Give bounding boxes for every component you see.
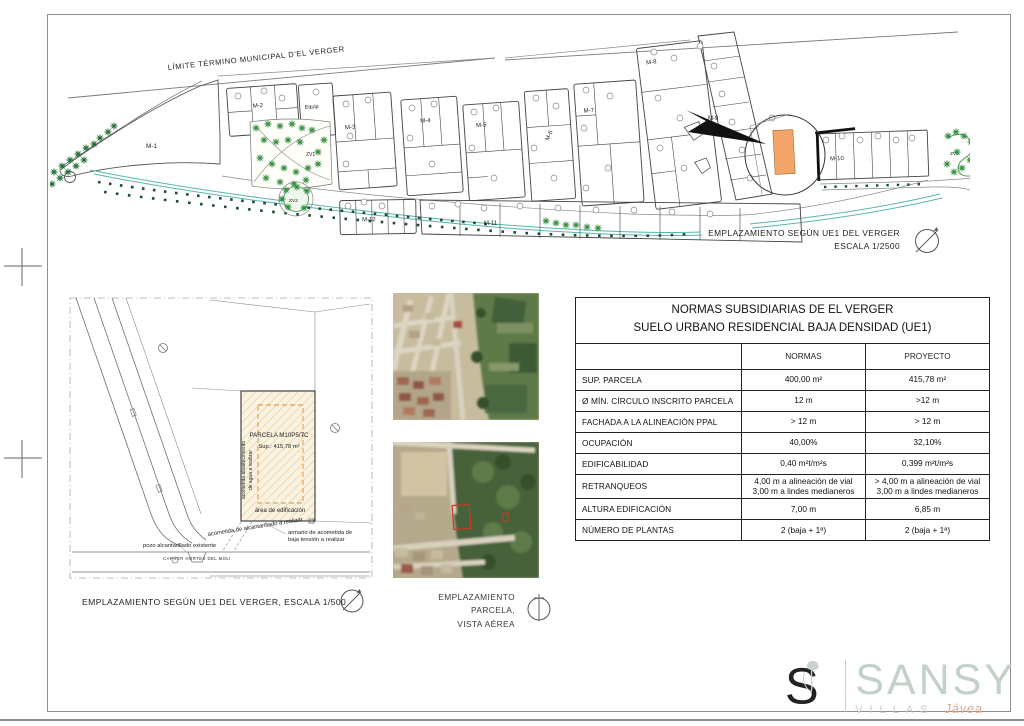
cell-proyecto: 2 (baja + 1ª)	[865, 519, 989, 540]
logo-divider	[845, 660, 847, 712]
svg-text:ESCALA 1/2500: ESCALA 1/2500	[834, 241, 900, 251]
svg-text:M-12: M-12	[362, 217, 376, 223]
boundary-label: LÍMITE TÉRMINO MUNICIPAL D'EL VERGER	[167, 44, 345, 72]
aerial-photo-parcel	[393, 442, 539, 578]
north-arrow-icon	[522, 590, 556, 624]
sansy-logo: S SANSY VILLAS Jávea	[780, 646, 1016, 716]
cell-proyecto: 415,78 m²	[865, 369, 989, 390]
block-m12: M-12	[340, 199, 417, 234]
row-label: OCUPACIÓN	[576, 432, 741, 453]
cell-normas: > 12 m	[741, 411, 865, 432]
armario-label-1: armario de acometida de	[288, 530, 352, 536]
block-m6: M-6	[524, 89, 576, 202]
plan-sheet: LÍMITE TÉRMINO MUNICIPAL D'EL VERGER M-1	[0, 0, 1024, 726]
svg-text:M-8: M-8	[646, 59, 658, 66]
block-m4: M-4	[401, 96, 464, 196]
crosshair-mark-top	[2, 246, 44, 288]
cell-proyecto: 6,85 m	[865, 498, 989, 519]
siteplan-ue1-500: PARCELA M10P5/7C Sup.: 415,78 m² área de…	[60, 290, 380, 622]
cell-normas: 40,00%	[741, 432, 865, 453]
cell-proyecto: > 4,00 m a alineación de vial 3,00 m a l…	[865, 474, 989, 499]
street-name-label: CARRER HORTES DEL MOLI	[163, 556, 231, 561]
tree-cluster-left-tip	[50, 123, 118, 188]
area-edificacion-label: área de edificación	[255, 508, 305, 514]
pointer-arrow-icon	[686, 110, 766, 144]
svg-text:M-1: M-1	[146, 143, 158, 150]
table-corner-cell	[576, 344, 741, 369]
cell-proyecto: 32,10%	[865, 432, 989, 453]
row-label: Ø MÍN. CÍRCULO INSCRITO PARCELA	[576, 390, 741, 411]
cell-normas: 4,00 m a alineación de vial 3,00 m a lin…	[741, 474, 865, 499]
normas-table: NORMAS SUBSIDIARIAS DE EL VERGER SUELO U…	[575, 297, 990, 541]
col-header-normas: NORMAS	[741, 344, 865, 369]
parcel-m10p57c: PARCELA M10P5/7C Sup.: 415,78 m² área de…	[241, 391, 315, 521]
svg-text:M-5: M-5	[476, 122, 487, 129]
svg-text:EMPLAZAMIENTO SEGÚN UE1 DEL V: EMPLAZAMIENTO SEGÚN UE1 DEL VERGER, ESCA…	[82, 597, 346, 607]
svg-text:EMPLAZAMIENTO SEGÚN UE1 DEL V: EMPLAZAMIENTO SEGÚN UE1 DEL VERGER	[708, 228, 900, 238]
aerial-photo-town	[393, 293, 539, 420]
cell-normas: 400,00 m²	[741, 369, 865, 390]
block-m3: M-3	[333, 92, 397, 190]
pozo-label: pozo alcantarillado existente	[143, 543, 216, 549]
row-label: SUP. PARCELA	[576, 369, 741, 390]
cell-normas: 12 m	[741, 390, 865, 411]
cell-normas: 7,00 m	[741, 498, 865, 519]
svg-text:M-6: M-6	[545, 129, 555, 141]
sansy-monogram-icon: S	[780, 648, 841, 716]
row-label: EDIFICABILIDAD	[576, 453, 741, 474]
svg-text:M-4: M-4	[420, 118, 431, 125]
logo-name: SANSY	[855, 662, 1016, 699]
row-label: RETRANQUEOS	[576, 474, 741, 499]
aerial-caption: EMPLAZAMIENTO PARCELA, VISTA AÉREA	[393, 591, 515, 631]
acometida-agua-label-1: acometida abastecimiento	[241, 441, 247, 499]
cell-normas: 0,40 m²t/m²s	[741, 453, 865, 474]
cell-proyecto: > 12 m	[865, 411, 989, 432]
acometida-agua-label-2: de agua a realizar	[248, 450, 254, 490]
cell-proyecto: >12 m	[865, 390, 989, 411]
svg-text:M-11: M-11	[484, 221, 498, 227]
siteplan-ue1-2500: LÍMITE TÉRMINO MUNICIPAL D'EL VERGER M-1	[50, 18, 970, 268]
block-m10: M-10	[815, 126, 929, 181]
parcel-name: PARCELA M10P5/7C	[249, 432, 309, 439]
row-label: ALTURA EDIFICACIÓN	[576, 498, 741, 519]
road-diagonal	[76, 298, 206, 547]
block-m9: M-9	[698, 32, 772, 200]
armario-label-2: baja tensión a realizar	[288, 537, 345, 543]
annotations: acometida de alcantarillado a realizar p…	[143, 517, 352, 563]
col-header-proyecto: PROYECTO	[865, 344, 989, 369]
tree-cluster-zv3	[944, 129, 971, 176]
north-arrow-icon	[916, 227, 939, 253]
svg-text:Equip: Equip	[305, 104, 319, 111]
logo-location: Jávea	[945, 702, 983, 716]
plot-boundary-dashed	[70, 298, 372, 578]
logo-subtitle: VILLAS Jávea	[855, 702, 1016, 716]
svg-text:M-10: M-10	[830, 156, 845, 162]
row-label: FACHADA A LA ALINEACIÓN PPAL	[576, 411, 741, 432]
road-lines	[218, 40, 970, 222]
svg-text:M-2: M-2	[253, 103, 264, 110]
siteplan-500-caption: EMPLAZAMIENTO SEGÚN UE1 DEL VERGER, ESCA…	[82, 589, 363, 612]
svg-text:M-7: M-7	[583, 108, 594, 115]
crosshair-mark-bottom	[2, 438, 44, 480]
municipal-boundary-line: LÍMITE TÉRMINO MUNICIPAL D'EL VERGER	[68, 32, 958, 98]
row-label: NÚMERO DE PLANTAS	[576, 519, 741, 540]
table-title: NORMAS SUBSIDIARIAS DE EL VERGER SUELO U…	[576, 298, 989, 344]
svg-text:M-3: M-3	[345, 125, 356, 132]
svg-text:ZV1: ZV1	[306, 152, 315, 158]
block-m1: M-1	[60, 80, 220, 183]
svg-text:ZV2: ZV2	[289, 198, 298, 204]
cell-normas: 2 (baja + 1ª)	[741, 519, 865, 540]
parcel-area: Sup.: 415,78 m²	[258, 444, 299, 450]
highlighted-parcel	[773, 130, 795, 175]
bottom-rule	[0, 719, 1024, 721]
teal-channel-lines	[90, 170, 942, 236]
siteplan-2500-caption: EMPLAZAMIENTO SEGÚN UE1 DEL VERGER ESCAL…	[708, 227, 938, 253]
cell-proyecto: 0,399 m²t/m²s	[865, 453, 989, 474]
